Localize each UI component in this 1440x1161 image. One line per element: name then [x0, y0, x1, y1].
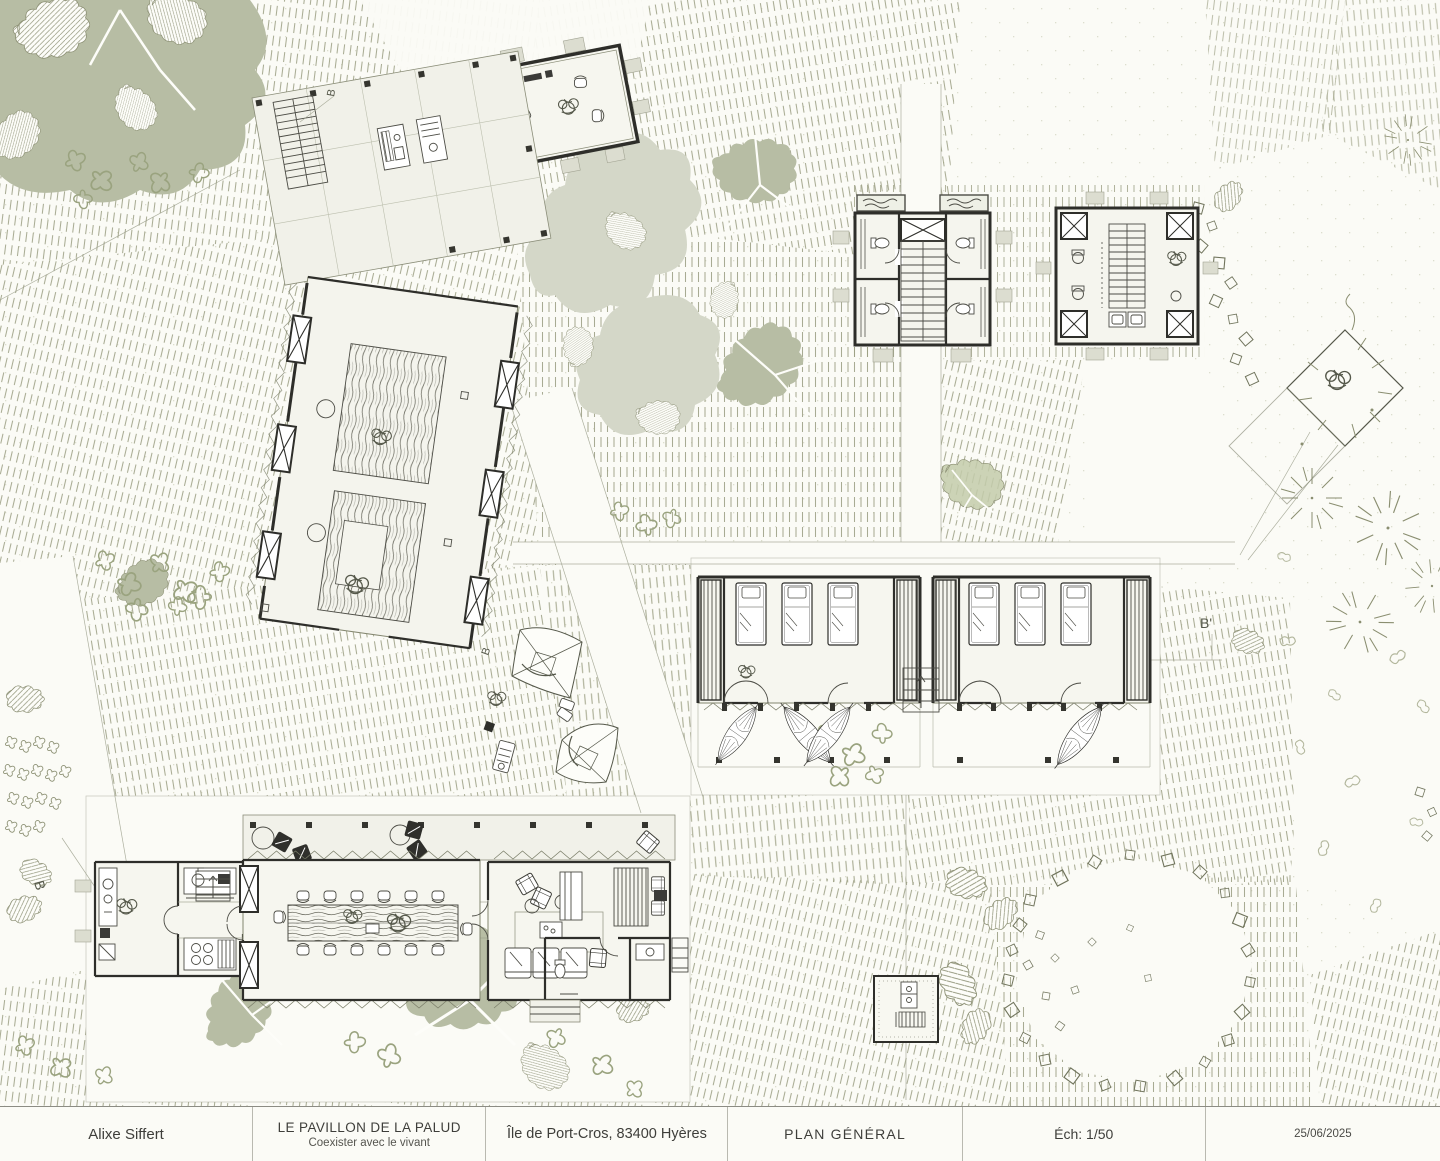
site-plan-drawing: B B B B': [0, 0, 1440, 1107]
building-living-pavilion: [472, 851, 688, 1022]
titleblock-date: 25/06/2025: [1205, 1107, 1440, 1161]
titleblock-author: Alixe Siffert: [0, 1107, 252, 1161]
building-sanitary-1: [833, 195, 1012, 362]
section-marker-b-prime: B': [1200, 615, 1212, 631]
project-subtitle: Coexister avec le vivant: [308, 1137, 429, 1149]
drawing-title: PLAN GÉNÉRAL: [784, 1126, 906, 1142]
location-text: Île de Port-Cros, 83400 Hyères: [507, 1126, 707, 1142]
titleblock-project: LE PAVILLON DE LA PALUD Coexister avec l…: [252, 1107, 485, 1161]
title-bar: Alixe Siffert LE PAVILLON DE LA PALUD Co…: [0, 1106, 1440, 1161]
building-dining-hall: [227, 851, 480, 1008]
titleblock-location: Île de Port-Cros, 83400 Hyères: [485, 1107, 727, 1161]
author-name: Alixe Siffert: [88, 1126, 164, 1143]
stove-room: [184, 938, 236, 970]
titleblock-drawing-title: PLAN GÉNÉRAL: [727, 1107, 961, 1161]
date-text: 25/06/2025: [1294, 1128, 1352, 1140]
building-utility-hut: [874, 976, 938, 1042]
sink-room: [184, 868, 236, 898]
scale-label: Éch: 1/50: [1054, 1126, 1113, 1142]
site-plan-sheet: B B B B' Alixe Siffert LE PAVILLON DE LA…: [0, 0, 1440, 1161]
titleblock-scale: Éch: 1/50: [962, 1107, 1205, 1161]
building-sanitary-2: [1036, 192, 1218, 360]
project-title: LE PAVILLON DE LA PALUD: [278, 1120, 461, 1135]
